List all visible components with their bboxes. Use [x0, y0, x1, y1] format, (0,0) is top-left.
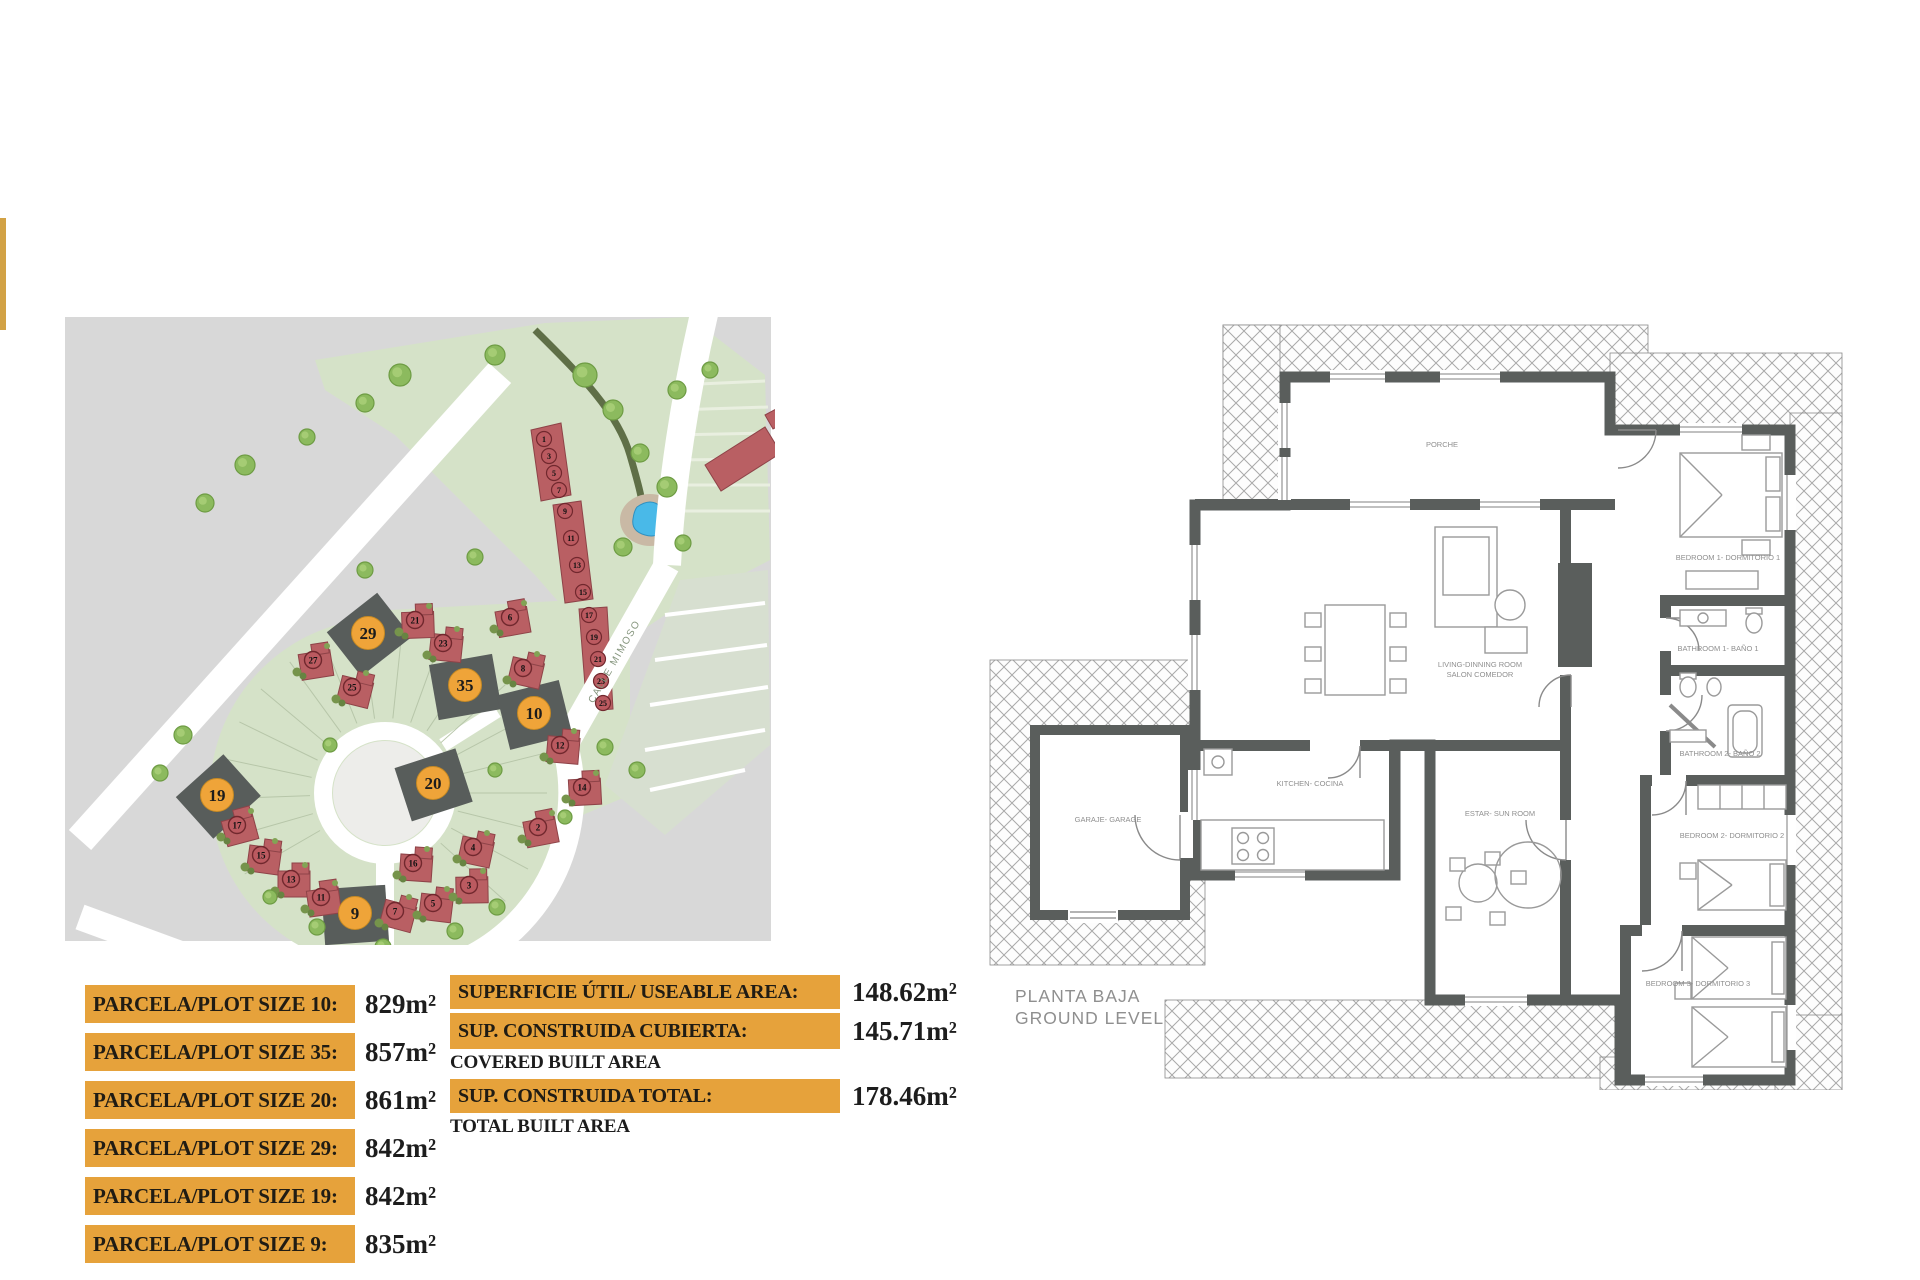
- side-table: [1495, 590, 1525, 620]
- built-area-label: SUPERFICIE ÚTIL/ USEABLE AREA:: [450, 975, 840, 1009]
- tree-highlight: [154, 767, 161, 774]
- plot-number: 15: [257, 850, 267, 860]
- tree-highlight: [359, 397, 367, 405]
- unit-number: 25: [599, 699, 607, 708]
- built-area-row: SUP. CONSTRUIDA CUBIERTA:COVERED BUILT A…: [450, 1013, 1010, 1074]
- plot-number: 21: [411, 615, 421, 625]
- label-living-2: SALON COMEDOR: [1447, 670, 1514, 679]
- plot-number: 2: [536, 822, 541, 832]
- unit-number: 5: [552, 469, 556, 478]
- plot-number: 3: [467, 880, 472, 890]
- plot-size-value: 835m²: [365, 1229, 436, 1260]
- plot-size-row: PARCELA/PLOT SIZE 9:835m²: [85, 1225, 436, 1263]
- built-area-row: SUP. CONSTRUIDA TOTAL:TOTAL BUILT AREA17…: [450, 1079, 1010, 1138]
- plot-size-label: PARCELA/PLOT SIZE 29:: [85, 1129, 355, 1167]
- tree-highlight: [631, 764, 638, 771]
- tree-highlight: [660, 480, 669, 489]
- label-porch: PORCHE: [1426, 440, 1458, 449]
- highlighted-plot-number: 35: [457, 676, 474, 695]
- built-area-label: SUP. CONSTRUIDA CUBIERTA:: [450, 1013, 840, 1049]
- unit-number: 17: [585, 611, 593, 620]
- label-bedroom1: BEDROOM 1- DORMITORIO 1: [1676, 553, 1780, 562]
- tree-highlight: [491, 901, 498, 908]
- plot-number: 14: [578, 782, 588, 792]
- toilet: [1746, 613, 1762, 633]
- plot-number: 7: [393, 906, 398, 916]
- unit-number: 1: [542, 435, 546, 444]
- tree-highlight: [634, 447, 642, 455]
- tree-highlight: [238, 458, 247, 467]
- highlighted-plot-number: 20: [425, 774, 442, 793]
- tree-highlight: [392, 367, 402, 377]
- label-sunroom: ESTAR- SUN ROOM: [1465, 809, 1535, 818]
- label-bathroom2: BATHROOM 2- BAÑO 2: [1679, 749, 1760, 758]
- floorplan-title: PLANTA BAJA GROUND LEVEL: [1015, 985, 1164, 1029]
- plot-size-table: PARCELA/PLOT SIZE 10:829m²PARCELA/PLOT S…: [85, 985, 436, 1273]
- built-area-value: 178.46m²: [852, 1079, 957, 1113]
- plot-size-value: 842m²: [365, 1181, 436, 1212]
- highlighted-plot-number: 29: [360, 624, 377, 643]
- plot-number: 13: [287, 874, 297, 884]
- highlighted-plot-number: 9: [351, 904, 360, 923]
- built-area-caption: TOTAL BUILT AREA: [450, 1116, 1010, 1138]
- highlighted-plot-number: 19: [209, 786, 226, 805]
- label-kitchen: KITCHEN- COCINA: [1277, 779, 1344, 788]
- garage: [1035, 730, 1193, 923]
- plot-number: 8: [521, 663, 526, 673]
- tree-highlight: [606, 403, 615, 412]
- plot-size-label: PARCELA/PLOT SIZE 19:: [85, 1177, 355, 1215]
- plot-size-value: 829m²: [365, 989, 436, 1020]
- label-bedroom2: BEDROOM 2- DORMITORIO 2: [1680, 831, 1784, 840]
- label-bathroom1: BATHROOM 1- BAÑO 1: [1677, 644, 1758, 653]
- built-area-value: 145.71m²: [852, 1013, 957, 1049]
- tree-highlight: [599, 741, 606, 748]
- label-bedroom3: BEDROOM 3- DORMITORIO 3: [1646, 979, 1750, 988]
- kitchen-counter: [1201, 820, 1384, 870]
- plot-number: 16: [409, 858, 419, 868]
- plot-number: 11: [317, 892, 326, 902]
- unit-number: 21: [594, 655, 602, 664]
- plot-size-row: PARCELA/PLOT SIZE 10:829m²: [85, 985, 436, 1023]
- plot-size-row: PARCELA/PLOT SIZE 29:842m²: [85, 1129, 436, 1167]
- built-area-row: SUPERFICIE ÚTIL/ USEABLE AREA:148.62m²: [450, 975, 1010, 1009]
- label-garage: GARAJE- GARAGE: [1075, 815, 1142, 824]
- tree-highlight: [560, 812, 566, 818]
- unit-number: 19: [590, 633, 598, 642]
- tree-highlight: [671, 384, 679, 392]
- plot-number: 5: [431, 898, 436, 908]
- tree-highlight: [488, 348, 497, 357]
- unit-number: 7: [557, 486, 561, 495]
- plot-number: 12: [556, 740, 566, 750]
- floor-plan: PORCHE LIVING-DINNING ROOM SALON COMEDOR…: [980, 315, 1870, 1090]
- plot-size-row: PARCELA/PLOT SIZE 35:857m²: [85, 1033, 436, 1071]
- plot-number: 27: [309, 655, 319, 665]
- bidet: [1707, 678, 1721, 696]
- tree-highlight: [311, 921, 318, 928]
- plot-size-label: PARCELA/PLOT SIZE 35:: [85, 1033, 355, 1071]
- floorplan-title-en: GROUND LEVEL: [1015, 1007, 1164, 1029]
- unit-number: 11: [567, 534, 575, 543]
- plot-size-value: 842m²: [365, 1133, 436, 1164]
- tree-highlight: [265, 892, 271, 898]
- brochure-page: 2935102019917151311753272523216812142416…: [0, 0, 1920, 1280]
- built-area-caption: COVERED BUILT AREA: [450, 1052, 1010, 1074]
- floorplan-title-es: PLANTA BAJA: [1015, 985, 1164, 1007]
- label-living-1: LIVING-DINNING ROOM: [1438, 660, 1522, 669]
- plot-size-label: PARCELA/PLOT SIZE 10:: [85, 985, 355, 1023]
- tree-highlight: [301, 431, 308, 438]
- plot-size-row: PARCELA/PLOT SIZE 19:842m²: [85, 1177, 436, 1215]
- site-plan: 2935102019917151311753272523216812142416…: [65, 315, 775, 945]
- plot-size-label: PARCELA/PLOT SIZE 9:: [85, 1225, 355, 1263]
- plot-size-value: 861m²: [365, 1085, 436, 1116]
- tree-highlight: [677, 537, 684, 544]
- plot-size-row: PARCELA/PLOT SIZE 20:861m²: [85, 1081, 436, 1119]
- plot-size-value: 857m²: [365, 1037, 436, 1068]
- tree-highlight: [359, 564, 366, 571]
- built-area-value: 148.62m²: [852, 975, 957, 1009]
- plot-number: 6: [508, 612, 513, 622]
- tree-highlight: [490, 765, 496, 771]
- tree-highlight: [704, 364, 711, 371]
- plot-number: 17: [233, 820, 243, 830]
- tree-highlight: [577, 367, 588, 378]
- tree-highlight: [199, 497, 207, 505]
- plot-size-label: PARCELA/PLOT SIZE 20:: [85, 1081, 355, 1119]
- highlighted-plot-number: 10: [526, 704, 543, 723]
- unit-number: 13: [573, 561, 581, 570]
- tree-highlight: [449, 925, 456, 932]
- plot-number: 4: [471, 842, 476, 852]
- plot-number: 25: [348, 682, 358, 692]
- page-edge-accent: [0, 218, 6, 330]
- unit-number: 15: [579, 588, 587, 597]
- built-area-label: SUP. CONSTRUIDA TOTAL:: [450, 1079, 840, 1113]
- tree-highlight: [177, 729, 185, 737]
- tree-highlight: [469, 551, 476, 558]
- unit-number: 3: [547, 452, 551, 461]
- dining-table: [1325, 605, 1385, 695]
- tree-highlight: [325, 740, 331, 746]
- unit-number: 9: [563, 507, 567, 516]
- built-area-table: SUPERFICIE ÚTIL/ USEABLE AREA:148.62m²SU…: [450, 975, 1010, 1175]
- plot-number: 23: [439, 638, 449, 648]
- tree-highlight: [617, 541, 625, 549]
